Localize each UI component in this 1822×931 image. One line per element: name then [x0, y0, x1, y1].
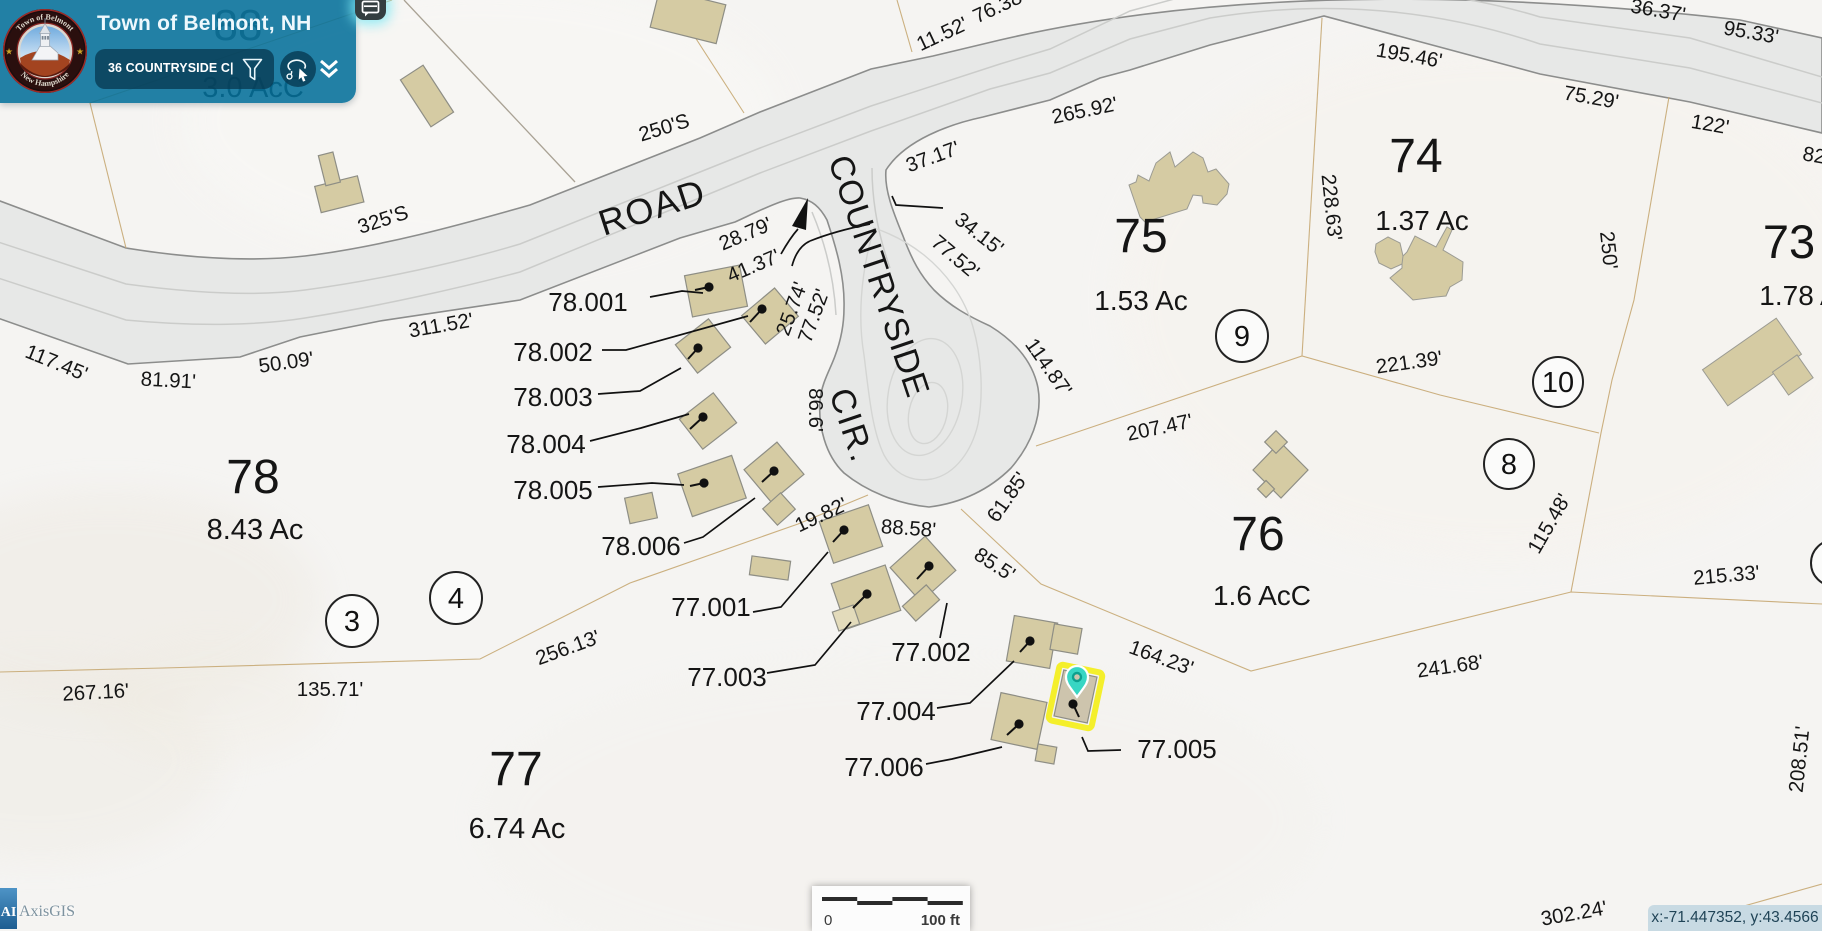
svg-text:78.004: 78.004	[506, 429, 586, 459]
svg-text:1.53 Ac: 1.53 Ac	[1094, 285, 1187, 316]
svg-text:77.006: 77.006	[844, 752, 924, 782]
svg-text:3: 3	[344, 606, 360, 638]
svg-text:78.001: 78.001	[548, 287, 628, 317]
svg-text:78.003: 78.003	[513, 382, 593, 412]
svg-text:86.6': 86.6'	[804, 388, 827, 432]
svg-text:75: 75	[1114, 210, 1167, 263]
svg-text:8.43 Ac: 8.43 Ac	[207, 514, 304, 546]
svg-text:78.006: 78.006	[601, 531, 681, 561]
svg-text:1.78 A: 1.78 A	[1759, 280, 1822, 311]
svg-text:77.003: 77.003	[687, 662, 767, 692]
svg-text:135.71': 135.71'	[297, 678, 364, 701]
svg-text:267.16': 267.16'	[62, 679, 130, 705]
svg-text:4: 4	[448, 583, 464, 615]
svg-text:6.74 Ac: 6.74 Ac	[469, 813, 566, 845]
svg-text:78: 78	[226, 451, 279, 504]
svg-text:250': 250'	[1595, 230, 1622, 270]
svg-text:81.91': 81.91'	[140, 368, 196, 394]
svg-text:77.002: 77.002	[891, 637, 971, 667]
svg-text:76: 76	[1231, 508, 1284, 561]
svg-text:★: ★	[5, 47, 13, 57]
svg-text:77: 77	[489, 743, 542, 796]
svg-text:8: 8	[1501, 449, 1517, 481]
svg-text:1.37 Ac: 1.37 Ac	[1375, 205, 1468, 236]
svg-text:78.002: 78.002	[513, 337, 593, 367]
svg-text:10: 10	[1542, 367, 1574, 399]
svg-text:88.58': 88.58'	[880, 515, 937, 542]
svg-text:77.004: 77.004	[856, 696, 936, 726]
svg-text:78.005: 78.005	[513, 475, 593, 505]
svg-text:73: 73	[1763, 215, 1815, 268]
svg-text:82: 82	[1801, 142, 1822, 169]
svg-text:74: 74	[1389, 130, 1442, 183]
svg-text:★: ★	[76, 47, 84, 57]
svg-text:1.6 AcC: 1.6 AcC	[1213, 580, 1311, 611]
svg-text:77.001: 77.001	[671, 592, 751, 622]
svg-text:77.005: 77.005	[1137, 734, 1217, 764]
svg-text:9: 9	[1234, 321, 1250, 353]
